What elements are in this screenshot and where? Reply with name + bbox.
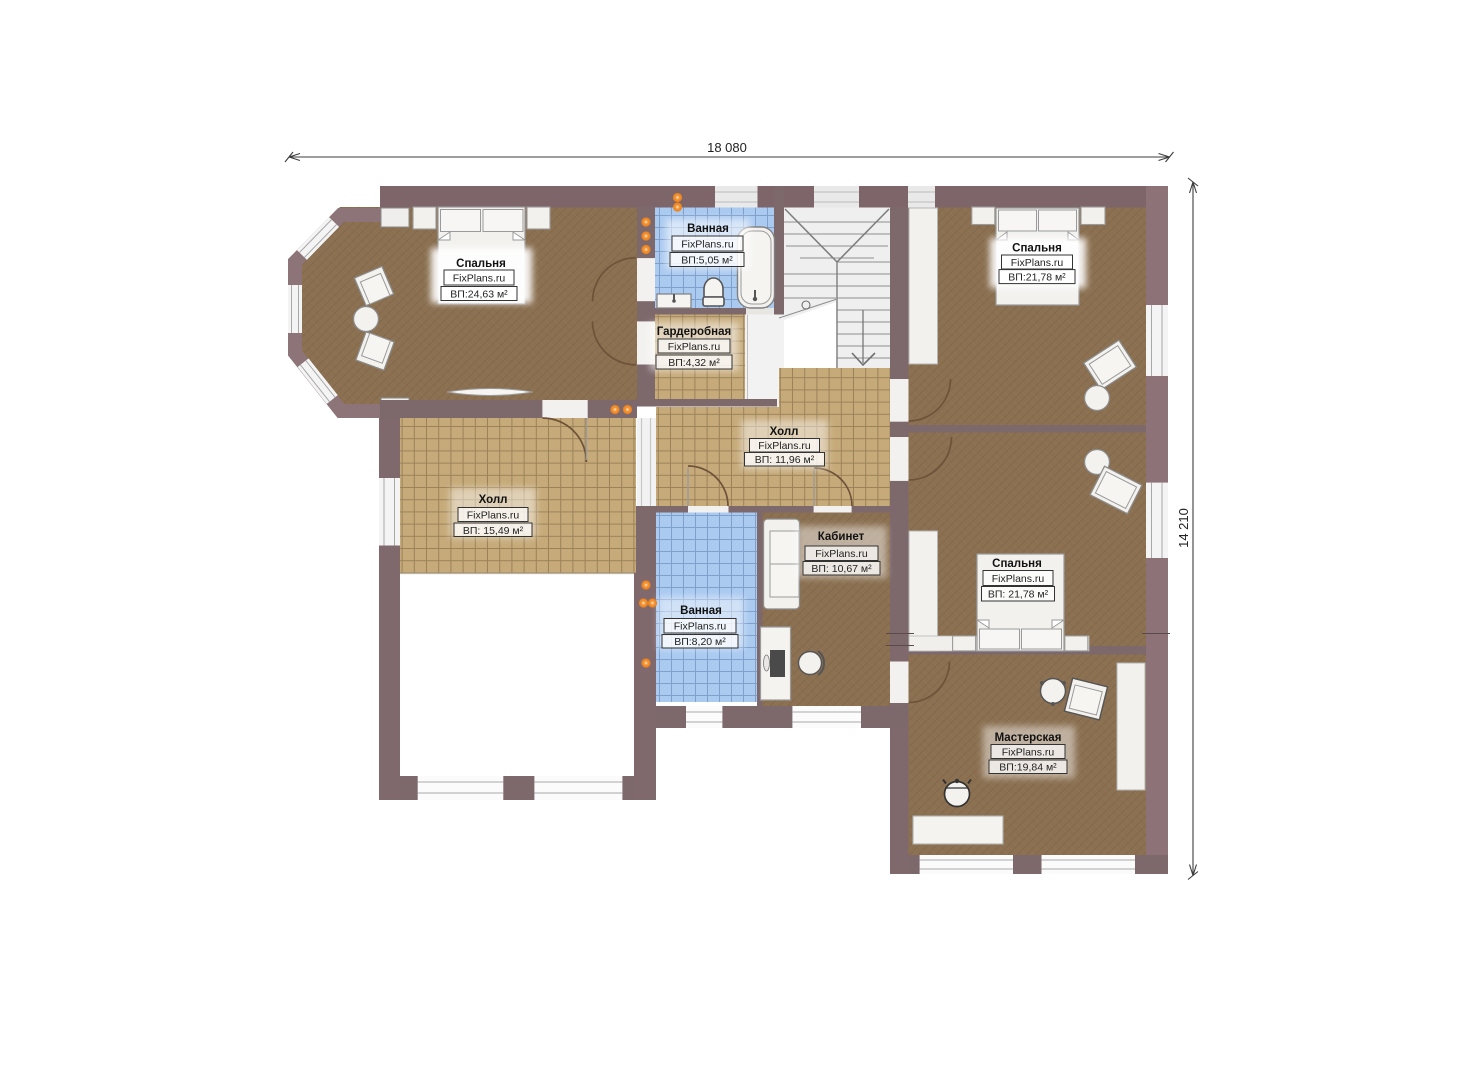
svg-text:Спальня: Спальня — [456, 258, 506, 270]
svg-text:ВП: 11,96 м²: ВП: 11,96 м² — [755, 454, 815, 466]
svg-text:ВП:5,05 м²: ВП:5,05 м² — [681, 255, 733, 267]
svg-text:14 210: 14 210 — [1176, 508, 1191, 548]
svg-text:FixPlans.ru: FixPlans.ru — [453, 273, 506, 285]
svg-text:Кабинет: Кабинет — [818, 531, 865, 543]
svg-text:Мастерская: Мастерская — [995, 732, 1062, 744]
svg-text:ВП: 15,49 м²: ВП: 15,49 м² — [463, 525, 524, 537]
svg-text:FixPlans.ru: FixPlans.ru — [758, 440, 811, 452]
svg-text:FixPlans.ru: FixPlans.ru — [992, 573, 1045, 585]
svg-text:FixPlans.ru: FixPlans.ru — [1002, 747, 1055, 759]
svg-text:FixPlans.ru: FixPlans.ru — [815, 548, 868, 560]
svg-text:ВП:4,32 м²: ВП:4,32 м² — [668, 357, 720, 369]
svg-text:FixPlans.ru: FixPlans.ru — [668, 341, 721, 353]
svg-text:ВП:19,84 м²: ВП:19,84 м² — [999, 762, 1057, 774]
svg-text:FixPlans.ru: FixPlans.ru — [681, 239, 734, 251]
svg-text:Холл: Холл — [770, 426, 799, 438]
svg-text:ВП:8,20 м²: ВП:8,20 м² — [674, 636, 726, 648]
svg-text:ВП: 21,78 м²: ВП: 21,78 м² — [988, 589, 1049, 601]
svg-text:FixPlans.ru: FixPlans.ru — [674, 621, 727, 633]
svg-text:ВП:24,63 м²: ВП:24,63 м² — [450, 289, 508, 301]
svg-text:Спальня: Спальня — [1012, 243, 1062, 255]
svg-text:Гардеробная: Гардеробная — [657, 326, 731, 338]
svg-text:Холл: Холл — [479, 494, 508, 506]
svg-text:FixPlans.ru: FixPlans.ru — [1011, 257, 1064, 269]
svg-text:ВП: 10,67 м²: ВП: 10,67 м² — [811, 563, 872, 575]
svg-text:FixPlans.ru: FixPlans.ru — [467, 510, 520, 522]
svg-text:Спальня: Спальня — [992, 558, 1042, 570]
svg-text:Ванная: Ванная — [680, 605, 722, 617]
svg-text:18 080: 18 080 — [707, 140, 747, 155]
svg-text:Ванная: Ванная — [687, 223, 729, 235]
svg-text:ВП:21,78 м²: ВП:21,78 м² — [1008, 272, 1066, 284]
